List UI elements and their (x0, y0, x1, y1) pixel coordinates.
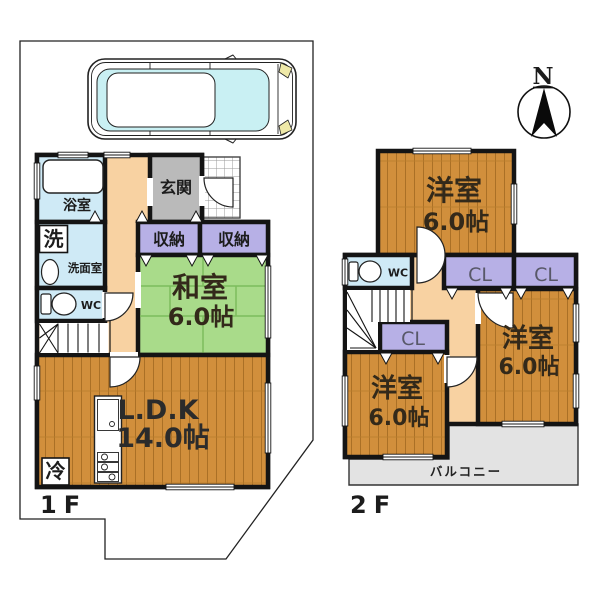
label-japanese-room-size: 6.0帖 (168, 303, 235, 331)
floor-plan-1f: 浴室 洗 洗面室 WC 玄関 収納 収納 和室 6.0帖 L.D.K 14.0帖… (34, 152, 271, 519)
label-ldk: L.D.K (117, 395, 199, 426)
label-western-left: 洋室 (371, 373, 423, 404)
car-roof (107, 73, 215, 127)
floor-plan-2f: 洋室 6.0帖 WC CL CL CL 洋室 6.0帖 洋室 6.0帖 バルコニ… (342, 148, 579, 519)
toilet-icon-2f (349, 261, 381, 282)
floorplan-canvas: N (0, 0, 600, 600)
label-western-top-size: 6.0帖 (423, 208, 490, 236)
label-closet2-1f: 収納 (218, 230, 250, 249)
label-wc-2f: WC (388, 267, 408, 280)
floor-label-1f: 1F (40, 491, 87, 519)
sink-icon (42, 260, 59, 285)
label-bath: 浴室 (63, 197, 91, 214)
label-balcony: バルコニー (430, 464, 502, 479)
toilet-icon-1f (41, 293, 76, 315)
floorplan-image: N (0, 0, 600, 600)
label-washer: 洗 (44, 227, 64, 251)
stove-icon (98, 453, 119, 482)
label-closet3-2f: CL (401, 328, 425, 350)
compass-north-label: N (532, 63, 553, 90)
label-western-right: 洋室 (502, 323, 554, 354)
label-ldk-size: 14.0帖 (116, 423, 210, 454)
label-western-left-size: 6.0帖 (369, 406, 430, 431)
label-washroom: 洗面室 (68, 261, 103, 275)
label-entrance: 玄関 (160, 178, 192, 197)
label-fridge: 冷 (46, 459, 66, 483)
label-closet1-2f: CL (468, 264, 492, 286)
label-japanese-room: 和室 (172, 271, 228, 304)
room-western-left (345, 352, 447, 457)
label-wc-1f: WC (81, 299, 101, 312)
compass-icon: N (518, 63, 570, 138)
stairs-1f (40, 321, 111, 355)
label-western-top: 洋室 (426, 174, 482, 207)
label-closet1-1f: 収納 (153, 230, 185, 249)
bathtub-icon (43, 160, 103, 193)
label-western-right-size: 6.0帖 (499, 355, 560, 380)
car-icon (88, 55, 296, 143)
label-closet2-2f: CL (534, 264, 558, 286)
floor-label-2f: 2F (350, 491, 397, 519)
